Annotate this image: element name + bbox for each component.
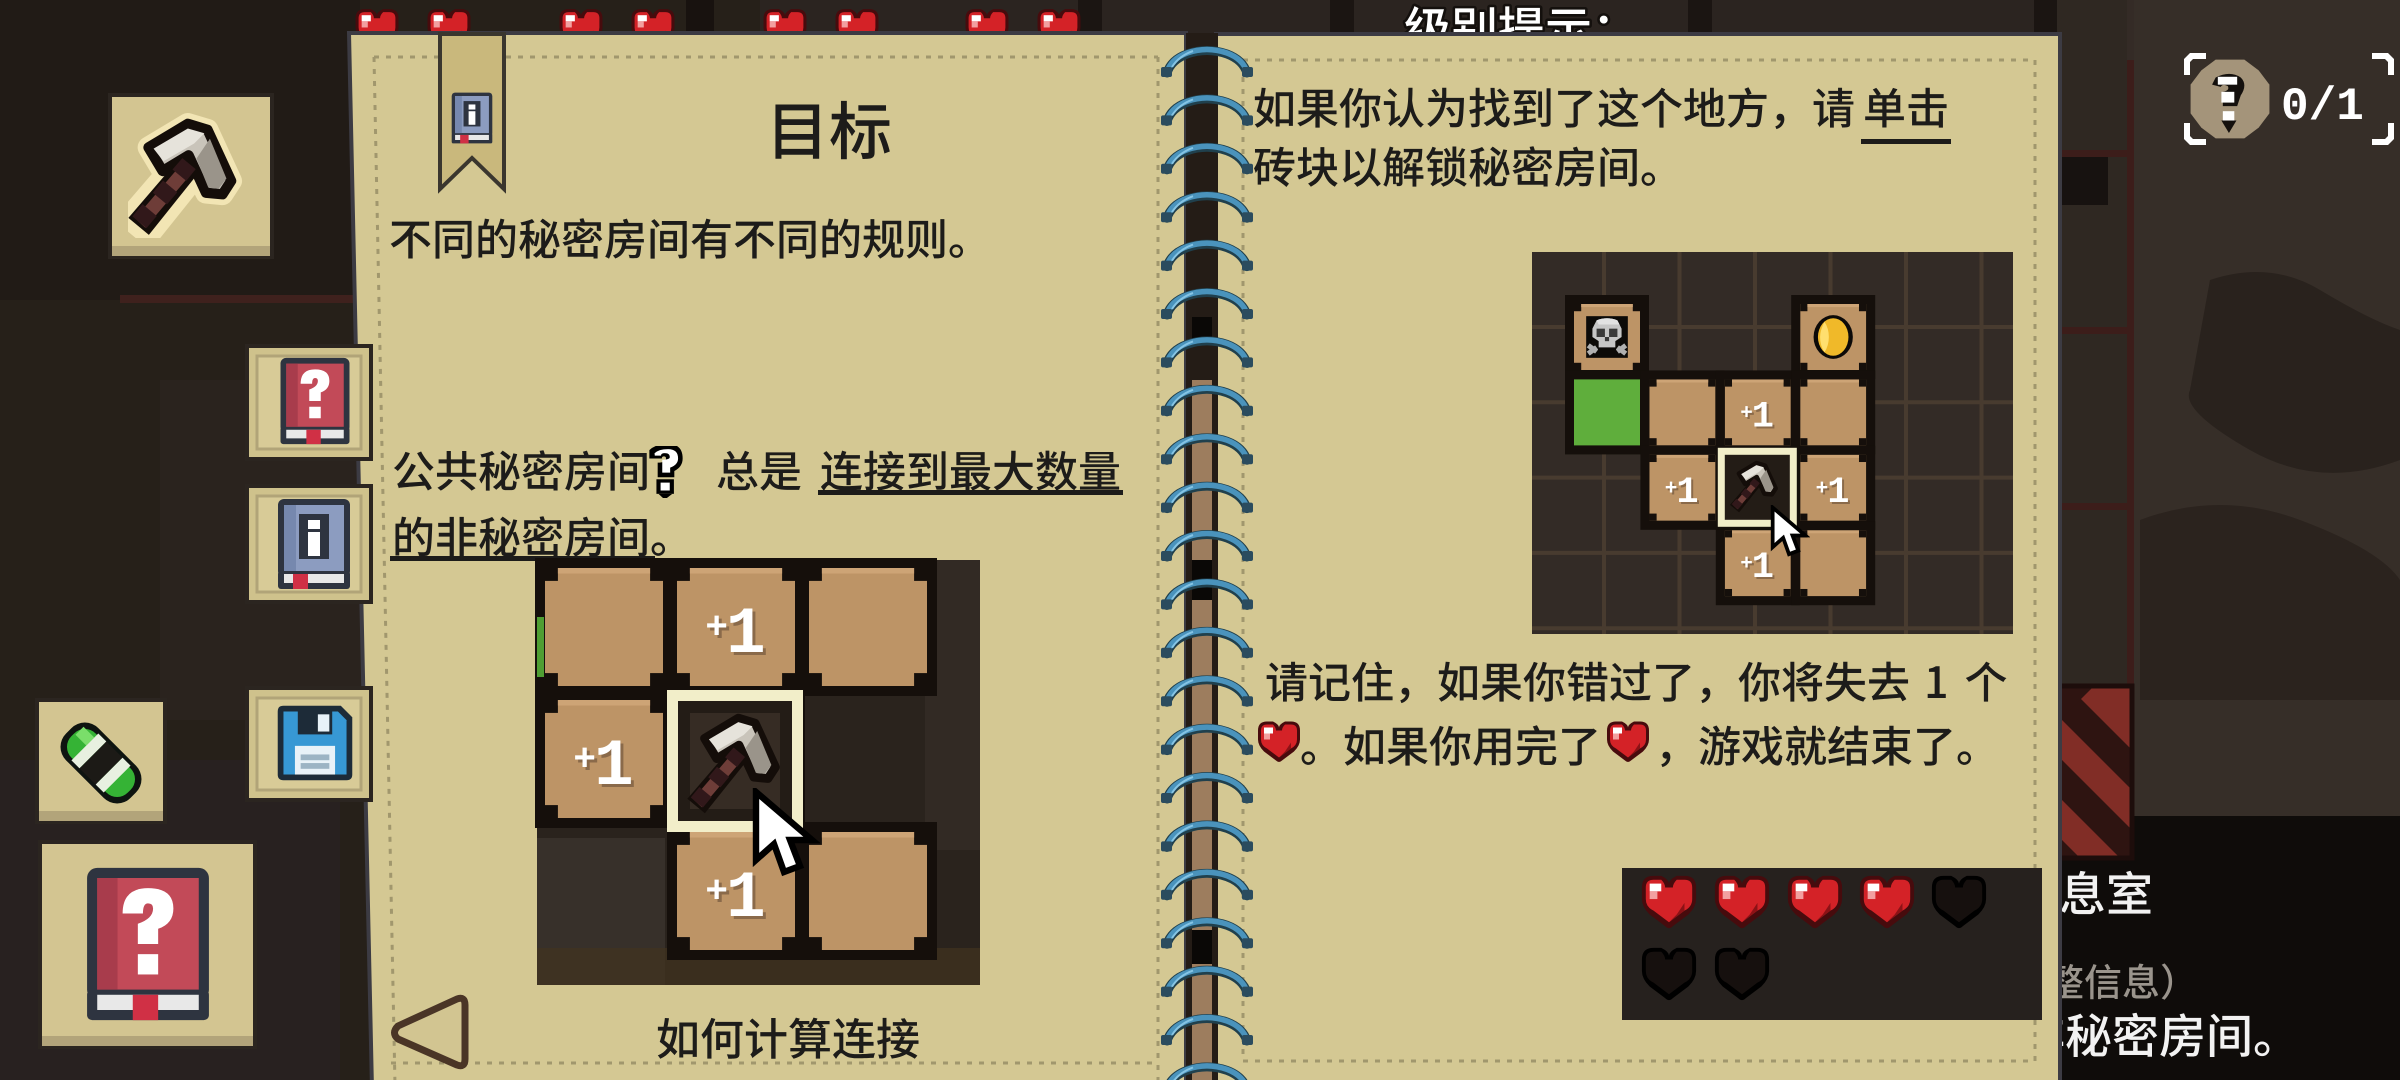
svg-text:1: 1: [726, 597, 766, 672]
svg-text:+: +: [573, 739, 596, 782]
svg-text:1: 1: [594, 729, 634, 804]
svg-text:+: +: [705, 871, 728, 914]
svg-text:0/1: 0/1: [2281, 81, 2364, 133]
svg-text:1: 1: [726, 861, 766, 936]
svg-text:1: 1: [1752, 396, 1774, 438]
svg-text:+: +: [705, 607, 728, 650]
svg-text:1: 1: [1676, 472, 1698, 514]
svg-text:1: 1: [1827, 472, 1849, 514]
svg-text:1: 1: [1752, 547, 1774, 589]
